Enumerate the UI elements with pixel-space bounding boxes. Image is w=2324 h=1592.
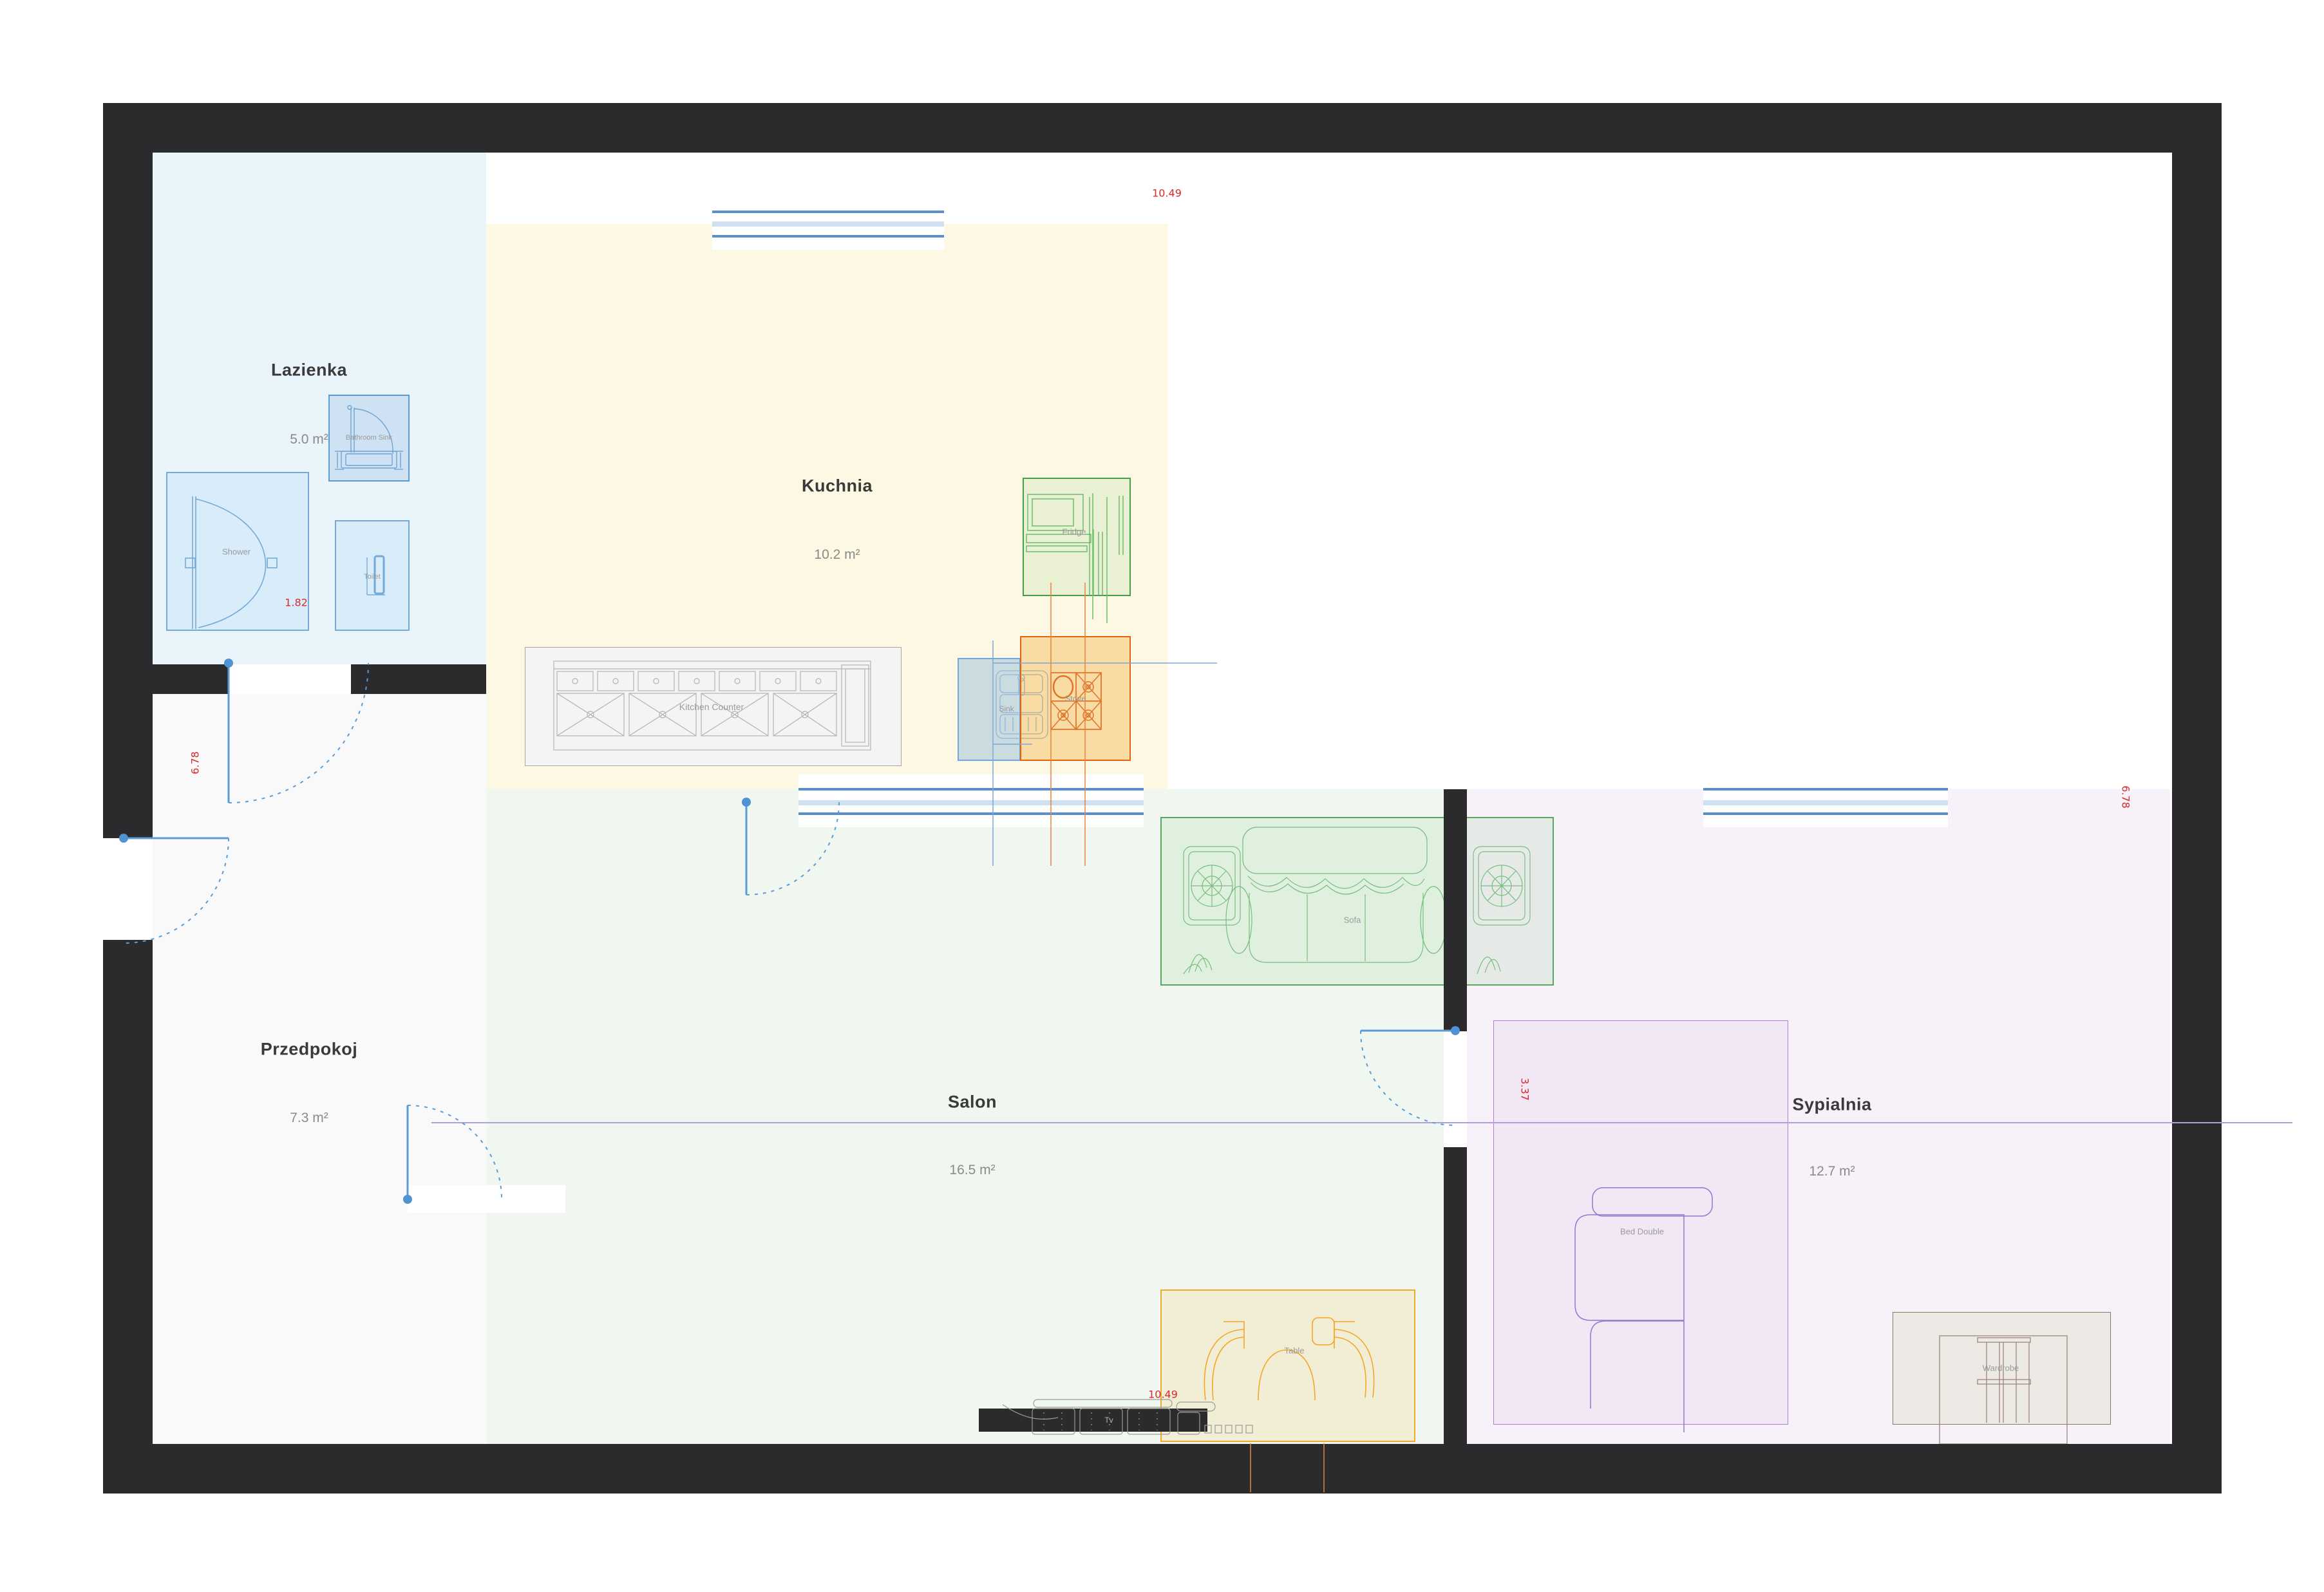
window-bedroom-top: [1703, 773, 1948, 827]
room-label-salon: Salon: [948, 1092, 997, 1112]
floor-plan-canvas: { "plan": { "title": "Apartment floor pl…: [0, 0, 2324, 1592]
wall-bottom: [103, 1444, 2222, 1494]
kitchen-counter-label: Kitchen Counter: [679, 702, 744, 712]
window-kitchen-top: [712, 201, 944, 250]
tv-box: [979, 1409, 1207, 1432]
wall-left-upper: [103, 153, 153, 838]
bathroom-sink-label: Bathroom Sink: [346, 434, 392, 442]
bedroom-zone-box: [1493, 1020, 1788, 1425]
stove-label: Stove: [1064, 694, 1086, 704]
wall-top: [103, 103, 2222, 153]
wall-left-lower: [103, 940, 153, 1444]
window-frame-line: [798, 812, 1144, 815]
fridge-label: Fridge: [1063, 527, 1086, 537]
dimension-right: 6.78: [2120, 785, 2132, 809]
door-opening-hall-salon: [408, 1185, 565, 1213]
dimension-bottom: 10.49: [1148, 1389, 1178, 1401]
dimension-shower: 1.82: [285, 597, 308, 609]
window-glass-band: [798, 800, 1144, 805]
window-frame-line: [712, 235, 944, 238]
room-label-przedpokoj: Przedpokoj: [261, 1040, 358, 1060]
table-label: Table: [1284, 1346, 1304, 1356]
dimension-bedroom: 3.37: [1519, 1078, 1531, 1101]
window-glass-band: [712, 221, 944, 227]
room-przedpokoj-fill: [153, 694, 487, 1444]
wall-bathroom-right: [351, 664, 486, 694]
sofa-box: [1160, 817, 1554, 986]
sofa-label: Sofa: [1344, 915, 1361, 925]
dimension-left: 6.78: [189, 751, 202, 774]
room-label-kuchnia: Kuchnia: [802, 476, 873, 496]
wardrobe-label: Wardrobe: [1983, 1363, 2019, 1373]
wall-right: [2172, 153, 2222, 1444]
room-label-lazienka: Lazienka: [271, 361, 347, 380]
fridge-box: [1023, 478, 1131, 596]
room-area-sypialnia: 12.7 m²: [1809, 1164, 1855, 1179]
window-frame-line: [1703, 788, 1948, 791]
toilet-label: Toilet: [364, 573, 381, 581]
room-label-sypialnia: Sypialnia: [1792, 1095, 1871, 1115]
shower-label: Shower: [222, 547, 250, 557]
room-area-lazienka: 5.0 m²: [290, 432, 328, 447]
window-glass-band: [1703, 800, 1948, 805]
sink-label: Sink: [999, 704, 1014, 713]
tv-label: Tv: [1104, 1416, 1113, 1425]
window-salon-kitchen: [798, 774, 1144, 827]
room-area-kuchnia: 10.2 m²: [814, 547, 860, 563]
wall-bedroom-lower: [1444, 1147, 1467, 1444]
bed-double-label: Bed Double: [1620, 1227, 1664, 1237]
wall-bathroom-left: [103, 664, 229, 694]
wall-bedroom-upper: [1444, 789, 1467, 1031]
window-frame-line: [798, 788, 1144, 791]
window-frame-line: [1703, 812, 1948, 815]
window-frame-line: [712, 211, 944, 213]
dimension-top: 10.49: [1152, 187, 1182, 200]
room-area-przedpokoj: 7.3 m²: [290, 1110, 328, 1126]
room-area-salon: 16.5 m²: [949, 1163, 995, 1178]
